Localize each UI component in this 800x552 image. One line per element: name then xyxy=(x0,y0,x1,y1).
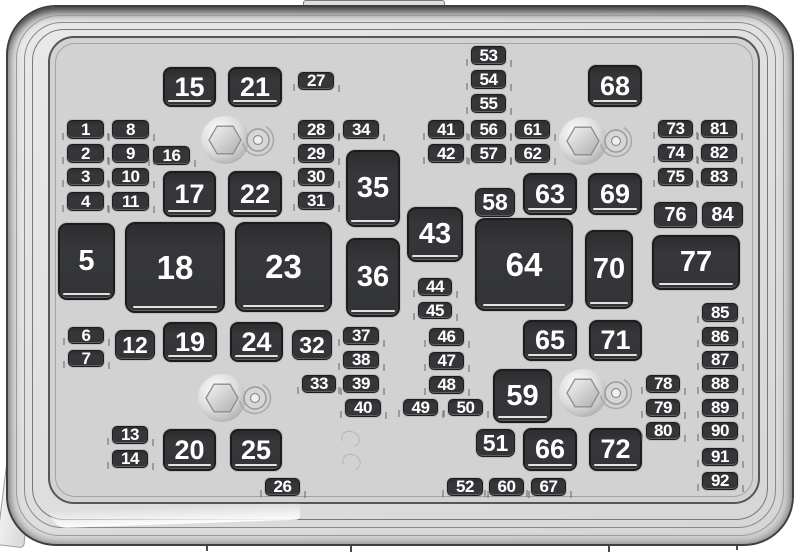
fuse-48: 48 xyxy=(429,376,464,394)
fuse-89: 89 xyxy=(702,399,738,417)
fuse-27: 27 xyxy=(298,72,334,90)
fuse-77: 77 xyxy=(652,235,740,290)
fuse-65: 65 xyxy=(523,320,577,361)
hex-bolt-icon xyxy=(199,114,275,166)
fuse-52: 52 xyxy=(447,478,483,496)
fuse-36: 36 xyxy=(346,238,400,317)
fuse-55: 55 xyxy=(471,94,506,113)
fuse-46: 46 xyxy=(429,328,464,346)
fuse-50-tick xyxy=(487,411,489,418)
fuse-44-tick xyxy=(456,291,458,298)
fuse-38: 38 xyxy=(343,351,379,369)
fuse-71: 71 xyxy=(589,320,642,361)
fuse-14-tick xyxy=(152,463,154,470)
fuse-20: 20 xyxy=(163,429,216,471)
fuse-31-tick xyxy=(338,205,340,212)
fuse-43: 43 xyxy=(407,207,463,262)
fuse-31: 31 xyxy=(298,192,334,210)
fuse-68: 68 xyxy=(588,65,642,107)
fuse-91-tick xyxy=(742,461,744,468)
fuse-92-tick xyxy=(742,485,744,492)
fuse-42-tick xyxy=(468,158,470,165)
fuse-1: 1 xyxy=(67,120,104,139)
fuse-22: 22 xyxy=(228,171,282,217)
fuse-63: 63 xyxy=(523,173,577,215)
fuse-61-tick xyxy=(554,134,556,141)
fuse-26-tick xyxy=(304,491,306,498)
fuse-30-tick xyxy=(338,181,340,188)
fuse-58: 58 xyxy=(475,188,515,217)
fuse-24: 24 xyxy=(230,322,283,362)
fuse-41-tick xyxy=(468,134,470,141)
fuse-10: 10 xyxy=(112,168,149,186)
fuse-41: 41 xyxy=(428,120,464,139)
fuse-35: 35 xyxy=(346,150,400,227)
fuse-83-tick xyxy=(741,181,743,188)
fuse-29: 29 xyxy=(298,144,334,163)
fuse-3: 3 xyxy=(67,168,104,186)
fuse-79: 79 xyxy=(646,399,680,417)
fuse-8: 8 xyxy=(112,120,149,139)
fuse-16-tick xyxy=(194,160,196,167)
fuse-16: 16 xyxy=(153,146,190,165)
fuse-12: 12 xyxy=(115,330,155,360)
fuse-82-tick xyxy=(741,157,743,164)
fuse-80: 80 xyxy=(646,422,680,440)
fuse-73: 73 xyxy=(658,120,693,138)
fuse-46-tick xyxy=(468,341,470,348)
fuse-34: 34 xyxy=(343,120,379,139)
fuse-45-tick xyxy=(456,314,458,321)
fuse-51: 51 xyxy=(476,429,515,457)
fuse-44: 44 xyxy=(418,278,452,296)
fuse-59: 59 xyxy=(493,369,552,423)
hex-bolt-icon xyxy=(196,372,272,424)
fuse-91: 91 xyxy=(702,448,738,466)
fuse-29-tick xyxy=(338,158,340,165)
fuse-87-tick xyxy=(742,364,744,371)
fuse-45: 45 xyxy=(418,302,452,319)
fuse-67: 67 xyxy=(531,478,566,496)
fuse-5: 5 xyxy=(58,223,115,300)
fuse-70: 70 xyxy=(585,230,633,309)
fuse-85-tick xyxy=(742,317,744,324)
fuse-7: 7 xyxy=(68,350,104,367)
fuse-85: 85 xyxy=(702,303,738,322)
hex-bolt-icon xyxy=(557,115,633,167)
fuse-39: 39 xyxy=(343,375,379,393)
fuse-25: 25 xyxy=(230,429,282,471)
fuse-6-tick xyxy=(108,339,110,346)
fuse-17: 17 xyxy=(163,171,216,217)
fuse-55-tick xyxy=(510,108,512,115)
fuse-14: 14 xyxy=(112,450,148,468)
fuse-9: 9 xyxy=(112,144,149,163)
fuse-54-tick xyxy=(510,84,512,91)
fuse-61: 61 xyxy=(515,120,550,139)
fuse-28: 28 xyxy=(298,120,334,139)
fuse-92: 92 xyxy=(702,472,738,490)
fuse-15: 15 xyxy=(163,67,216,107)
fuse-81: 81 xyxy=(701,120,737,138)
fuse-10-tick xyxy=(153,181,155,188)
fuse-79-tick xyxy=(684,412,686,419)
fuse-6: 6 xyxy=(68,327,104,344)
fuse-37: 37 xyxy=(343,327,379,345)
fuse-21: 21 xyxy=(228,67,282,107)
fuse-78: 78 xyxy=(646,375,680,393)
fuse-53-tick xyxy=(510,60,512,67)
fuse-34-tick xyxy=(383,134,385,141)
fuse-80-tick xyxy=(684,435,686,442)
hex-bolt-icon xyxy=(557,367,633,419)
fuse-56: 56 xyxy=(471,120,506,139)
fuse-11: 11 xyxy=(112,192,149,211)
fuse-90: 90 xyxy=(702,422,738,440)
fuse-62: 62 xyxy=(515,144,550,163)
fuse-box-diagram: 1234567891011121314151617181920212223242… xyxy=(0,0,800,552)
fuse-74: 74 xyxy=(658,144,693,162)
fuse-32: 32 xyxy=(292,330,332,360)
fuse-37-tick xyxy=(383,340,385,347)
fuse-38-tick xyxy=(383,364,385,371)
fuse-47-tick xyxy=(468,365,470,372)
fuse-49: 49 xyxy=(403,399,438,416)
fuse-39-tick xyxy=(383,388,385,395)
fuse-4: 4 xyxy=(67,192,104,211)
fuse-53: 53 xyxy=(471,46,506,65)
fuse-88-tick xyxy=(742,388,744,395)
fuse-64: 64 xyxy=(475,218,573,311)
fuse-54: 54 xyxy=(471,70,506,89)
fuse-42: 42 xyxy=(428,144,464,163)
fuse-82: 82 xyxy=(701,144,737,162)
fuse-76: 76 xyxy=(654,202,697,228)
fuse-30: 30 xyxy=(298,168,334,186)
fuse-23: 23 xyxy=(235,222,332,312)
fuse-90-tick xyxy=(742,435,744,442)
fuse-89-tick xyxy=(742,412,744,419)
fuse-33-tick xyxy=(340,388,342,395)
fuse-84: 84 xyxy=(702,202,743,228)
fuse-78-tick xyxy=(684,388,686,395)
fuse-75: 75 xyxy=(658,168,693,186)
fuse-13-tick xyxy=(152,439,154,446)
fuse-69: 69 xyxy=(588,173,642,215)
fuse-40: 40 xyxy=(345,399,381,417)
fuse-40-tick xyxy=(385,412,387,419)
fuse-86-tick xyxy=(742,341,744,348)
fuse-81-tick xyxy=(741,133,743,140)
fuse-50: 50 xyxy=(448,399,483,416)
fuse-60: 60 xyxy=(489,478,524,496)
fuse-66: 66 xyxy=(523,428,577,471)
fuse-62-tick xyxy=(554,158,556,165)
fuse-88: 88 xyxy=(702,375,738,393)
fuse-47: 47 xyxy=(429,352,464,370)
fuse-11-tick xyxy=(153,206,155,213)
fuse-33: 33 xyxy=(302,375,336,393)
fuse-67-tick xyxy=(570,491,572,498)
fuse-2: 2 xyxy=(67,144,104,163)
fuse-72: 72 xyxy=(589,428,642,471)
fuse-27-tick xyxy=(338,85,340,92)
fuse-18: 18 xyxy=(125,222,225,313)
fuse-48-tick xyxy=(468,389,470,396)
fuse-8-tick xyxy=(153,134,155,141)
fuse-26: 26 xyxy=(265,478,300,496)
fuse-86: 86 xyxy=(702,327,738,346)
fuse-19: 19 xyxy=(163,322,217,362)
fuse-60-tick xyxy=(528,491,530,498)
fuse-83: 83 xyxy=(701,168,737,186)
fuse-13: 13 xyxy=(112,426,148,444)
fuse-57: 57 xyxy=(471,144,506,163)
fuse-7-tick xyxy=(108,362,110,369)
fuse-87: 87 xyxy=(702,351,738,369)
